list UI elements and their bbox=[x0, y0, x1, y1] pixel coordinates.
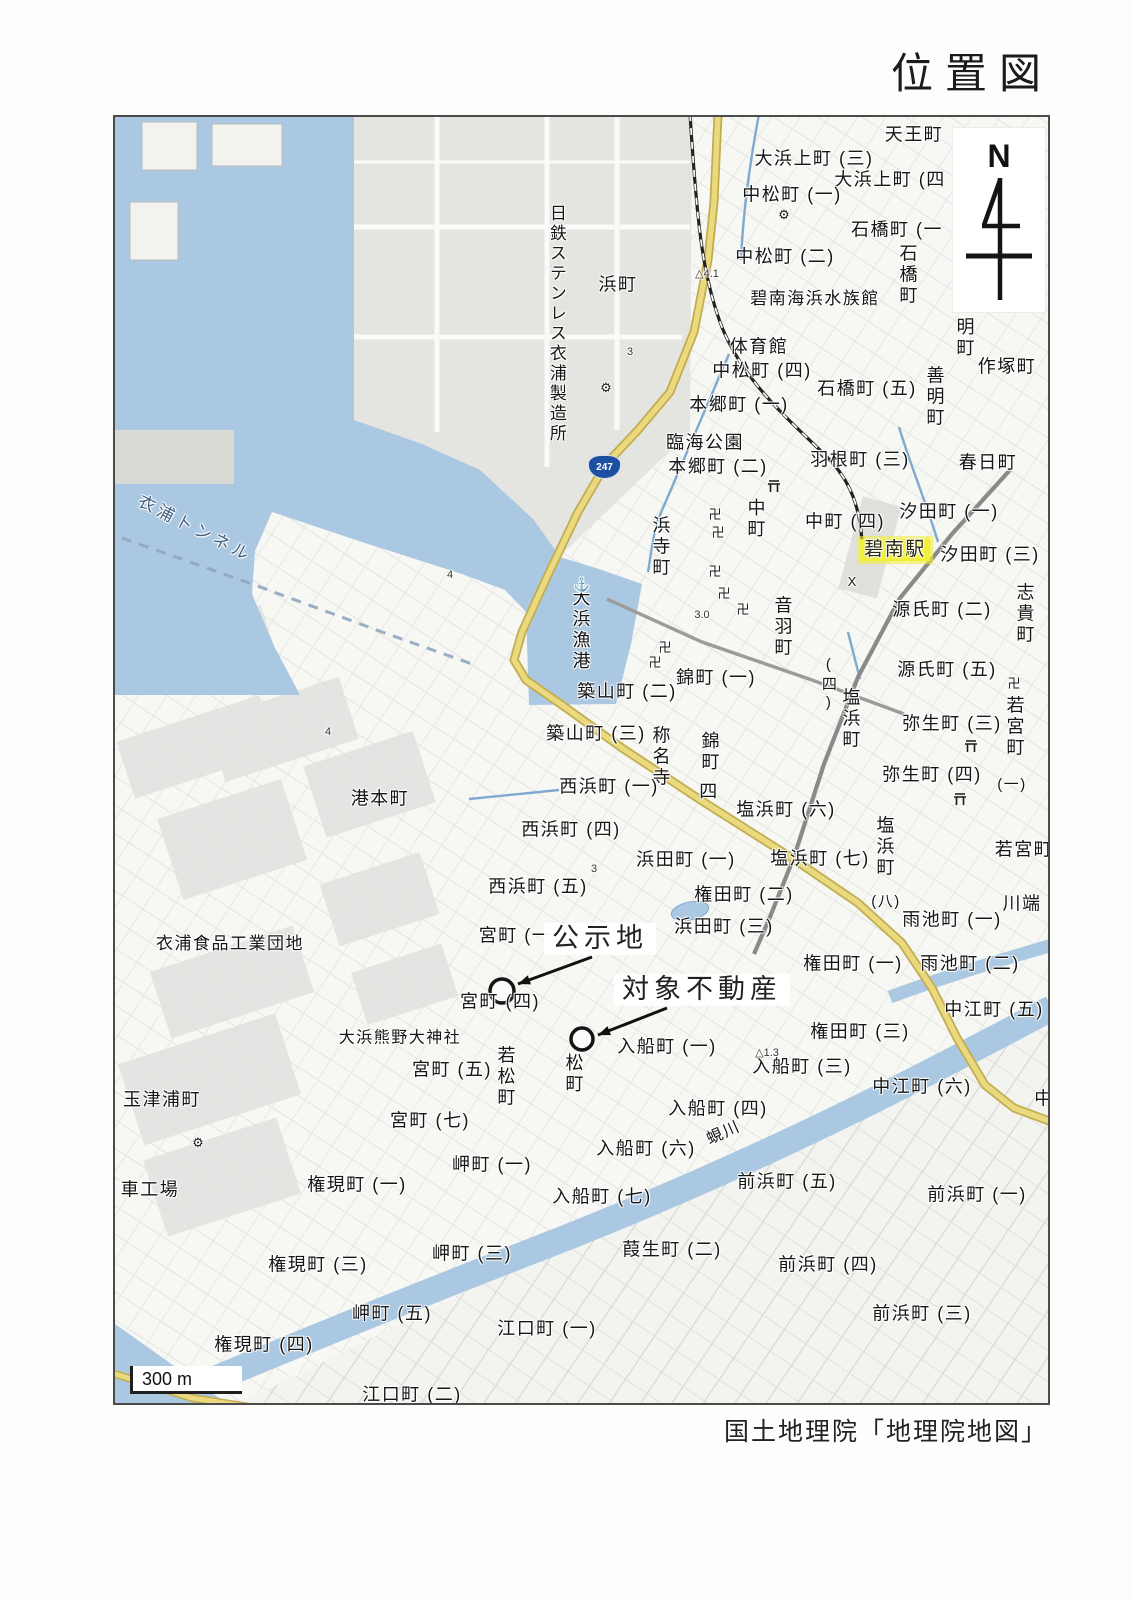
map-label: △4.1 bbox=[695, 269, 719, 281]
map-label: ⚙ bbox=[192, 1136, 204, 1150]
map-label: 入船町 (六) bbox=[596, 1140, 696, 1159]
map-label: 弥生町 (四) bbox=[882, 766, 982, 785]
map-label: 入船町 (七) bbox=[552, 1188, 652, 1207]
map-credit: 国土地理院「地理院地図」 bbox=[724, 1412, 1048, 1448]
page-title: 位置図 bbox=[891, 40, 1053, 101]
map-label: 権現町 (一) bbox=[307, 1176, 407, 1195]
map-label: 称名寺 bbox=[651, 726, 670, 789]
map-label: 4 bbox=[447, 570, 453, 582]
map-label: 前浜町 (四) bbox=[778, 1256, 878, 1275]
map-label: 若宮町 bbox=[1005, 696, 1024, 759]
map-label: 築山町 (二) bbox=[577, 683, 677, 702]
map-label: 卍 bbox=[736, 603, 749, 617]
map-label: 3.0 bbox=[694, 610, 709, 622]
map-label: 天王町 bbox=[885, 126, 944, 145]
map-label: 汐田町 (三) bbox=[940, 546, 1040, 565]
map-label: △1.3 bbox=[755, 1048, 779, 1060]
map-label: 卍 bbox=[708, 565, 721, 579]
map-label: 権田町 (三) bbox=[810, 1023, 910, 1042]
map-label: 大浜熊野大神社 bbox=[339, 1031, 462, 1048]
map-label: 江口町 (二) bbox=[362, 1386, 462, 1405]
scale-bar: 300 m bbox=[130, 1366, 242, 1394]
map-label: (四) bbox=[820, 656, 836, 714]
map-label: 玉津浦町 bbox=[123, 1091, 201, 1110]
map-label: 宮町 (一 bbox=[479, 927, 552, 946]
map-label: 葭生町 (二) bbox=[622, 1241, 722, 1260]
map-label: 中江町 (六) bbox=[872, 1078, 972, 1097]
map-label: 石橋町 bbox=[898, 244, 917, 307]
map-label: 浜寺町 bbox=[651, 516, 670, 579]
map-label: 川端 bbox=[1003, 895, 1042, 914]
map-label: 浜田町 (三) bbox=[674, 918, 774, 937]
map-label: 体育館 bbox=[730, 338, 789, 357]
map-label: 日鉄ステンレス衣浦製造所 bbox=[547, 204, 565, 444]
map-label: 塩浜町 bbox=[875, 816, 894, 879]
label-layer: 天王町大浜上町 (三)大浜上町 (四中松町 (一)石橋町 (一中松町 (二)碧南… bbox=[115, 117, 1048, 1403]
map-label: 中町 (四) bbox=[805, 513, 885, 532]
map-label: 春日町 bbox=[959, 454, 1018, 473]
map-label: 中松町 (二) bbox=[735, 248, 835, 267]
map-label: 大浜上町 (四 bbox=[834, 171, 946, 190]
map-label: (八) bbox=[871, 894, 901, 910]
map-label: 本郷町 (一) bbox=[689, 396, 789, 415]
map-label: 3 bbox=[627, 347, 633, 359]
map-label: 岬町 (三) bbox=[432, 1245, 512, 1264]
map-label: 臨海公園 bbox=[666, 434, 744, 453]
map-label: 若松町 bbox=[496, 1046, 515, 1109]
map-label: 錦町 (一) bbox=[676, 669, 756, 688]
map-label: 前浜町 (一) bbox=[927, 1186, 1027, 1205]
map-label: 錦町 bbox=[700, 731, 719, 773]
north-indicator: N bbox=[952, 127, 1046, 313]
north-arrow-icon bbox=[953, 172, 1045, 307]
map-label: 大浜漁港 bbox=[571, 588, 590, 672]
map-label: X bbox=[848, 575, 857, 589]
map-label: 衣浦食品工業団地 bbox=[156, 935, 304, 953]
map-label: 浜田町 (一) bbox=[636, 851, 736, 870]
map-label: 源氏町 (五) bbox=[897, 661, 997, 680]
map-label: 浜町 bbox=[599, 276, 638, 295]
map-label: 西浜町 (五) bbox=[488, 878, 588, 897]
map-label: ⚙ bbox=[600, 381, 612, 395]
map-label: 雨池町 (一) bbox=[902, 911, 1002, 930]
map-label: 入船町 (三) bbox=[752, 1058, 852, 1077]
map-label: 宮町 (五) bbox=[412, 1061, 492, 1080]
map-label: 西浜町 (一) bbox=[559, 778, 659, 797]
scanned-map-document: { "page": { "title": "位置図", "credit": "国… bbox=[0, 0, 1132, 1600]
map-label: 権田町 (一) bbox=[803, 955, 903, 974]
map-label: 大浜上町 (三) bbox=[755, 150, 874, 169]
map-label: 築山町 (三) bbox=[546, 725, 646, 744]
map-label: 3 bbox=[591, 864, 597, 876]
map-label: 前浜町 (三) bbox=[872, 1305, 972, 1324]
map-label: 若宮町 bbox=[995, 841, 1050, 860]
map-label: 港本町 bbox=[351, 790, 410, 809]
map-label: 汐田町 (一) bbox=[899, 503, 999, 522]
map-label: 入船町 (一) bbox=[617, 1038, 717, 1057]
map-label: 岬町 (一) bbox=[452, 1156, 532, 1175]
map-label: 碧南海浜水族館 bbox=[750, 290, 880, 308]
map-label: 江口町 (一) bbox=[497, 1320, 597, 1339]
map-label: 塩浜町 (六) bbox=[736, 801, 836, 820]
map-label: (一) bbox=[997, 777, 1027, 793]
map-label: 卍 bbox=[658, 641, 671, 655]
map-label: 権現町 (三) bbox=[268, 1256, 368, 1275]
map-label: 車工場 bbox=[121, 1181, 180, 1200]
map-label: 源氏町 (二) bbox=[892, 601, 992, 620]
map-label: 本郷町 (二) bbox=[668, 458, 768, 477]
annotation-label: 対象不動産 bbox=[614, 974, 790, 1006]
map-label: 雨池町 (二) bbox=[920, 955, 1020, 974]
map-label: ⚙ bbox=[778, 208, 790, 222]
map-label: 中 bbox=[1034, 1090, 1050, 1109]
map-label: 宮町 (七) bbox=[390, 1112, 470, 1131]
map-label: 明町 bbox=[955, 317, 974, 359]
map-label: 中江町 (五) bbox=[944, 1001, 1044, 1020]
map-label: 中松町 (四) bbox=[712, 362, 812, 381]
map-label: 宮町 (四) bbox=[460, 993, 540, 1012]
map-label: 石橋町 (一 bbox=[851, 221, 943, 240]
map-label: 卍 bbox=[708, 508, 721, 522]
map-label: 弥生町 (三) bbox=[902, 715, 1002, 734]
map-label: 卍 bbox=[648, 656, 661, 670]
map-label: 中町 bbox=[746, 498, 765, 540]
map-label: 羽根町 (三) bbox=[810, 451, 910, 470]
map-label: 前浜町 (五) bbox=[737, 1173, 837, 1192]
map-label: 塩浜町 (七) bbox=[770, 850, 870, 869]
map-label: 塩浜町 bbox=[841, 688, 860, 751]
map-label: 卍 bbox=[1007, 677, 1020, 691]
station-highlight: 碧南駅 bbox=[860, 539, 930, 561]
map-label: 石橋町 (五) bbox=[817, 380, 917, 399]
map-label: 蜆川 bbox=[705, 1119, 744, 1149]
map-label: ⚓ bbox=[574, 578, 590, 592]
map-label: 四 bbox=[699, 783, 719, 802]
map-label: 善明町 bbox=[925, 366, 944, 429]
map-label: 卍 bbox=[717, 587, 730, 601]
map-label: 卍 bbox=[711, 526, 724, 540]
map-label: 衣浦トンネル bbox=[135, 493, 255, 566]
north-label: N bbox=[953, 140, 1045, 172]
map-label: 松町 bbox=[564, 1053, 583, 1095]
map-label: 権田町 (二) bbox=[694, 886, 794, 905]
annotation-label: 公示地 bbox=[544, 923, 656, 955]
map-label: 入船町 (四) bbox=[668, 1100, 768, 1119]
map-area: 天王町大浜上町 (三)大浜上町 (四中松町 (一)石橋町 (一中松町 (二)碧南… bbox=[113, 115, 1050, 1405]
map-label: 中松町 (一) bbox=[742, 186, 842, 205]
map-label: 岬町 (五) bbox=[352, 1305, 432, 1324]
map-label: 4 bbox=[325, 727, 331, 739]
map-label: 音羽町 bbox=[773, 596, 792, 659]
map-label: 西浜町 (四) bbox=[521, 821, 621, 840]
map-label: 志貴町 bbox=[1015, 583, 1034, 646]
map-label: 作塚町 bbox=[978, 358, 1037, 377]
map-label: 権現町 (四) bbox=[214, 1336, 314, 1355]
